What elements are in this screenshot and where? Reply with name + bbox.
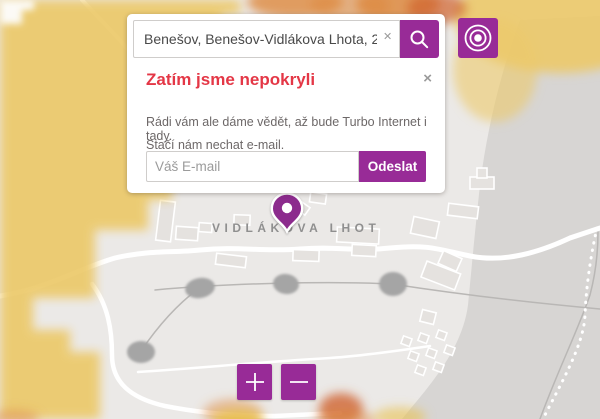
search-popup-panel: ✕ Zatím jsme nepokryli × Rádi vám ale dá… [127,14,445,193]
close-icon[interactable]: × [423,71,432,86]
clear-search-icon[interactable]: ✕ [383,32,392,43]
target-icon [461,21,495,55]
map-app: VIDLÁKOVA LHOT ✕ Zatím jsme nepokryli × … [0,0,600,419]
plus-icon [241,368,269,396]
email-field[interactable] [146,151,359,182]
search-button[interactable] [400,20,439,58]
locate-me-button[interactable] [458,18,498,58]
submit-email-button[interactable]: Odeslat [359,151,426,182]
zoom-in-button[interactable] [237,364,272,400]
search-input[interactable] [133,20,400,58]
minus-icon [285,368,313,396]
zoom-out-button[interactable] [281,364,316,400]
search-icon [409,29,430,50]
map-pin-icon [270,192,304,234]
popup-body-line2: Stačí nám nechat e-mail. [146,138,284,152]
popup-title: Zatím jsme nepokryli [146,70,315,90]
